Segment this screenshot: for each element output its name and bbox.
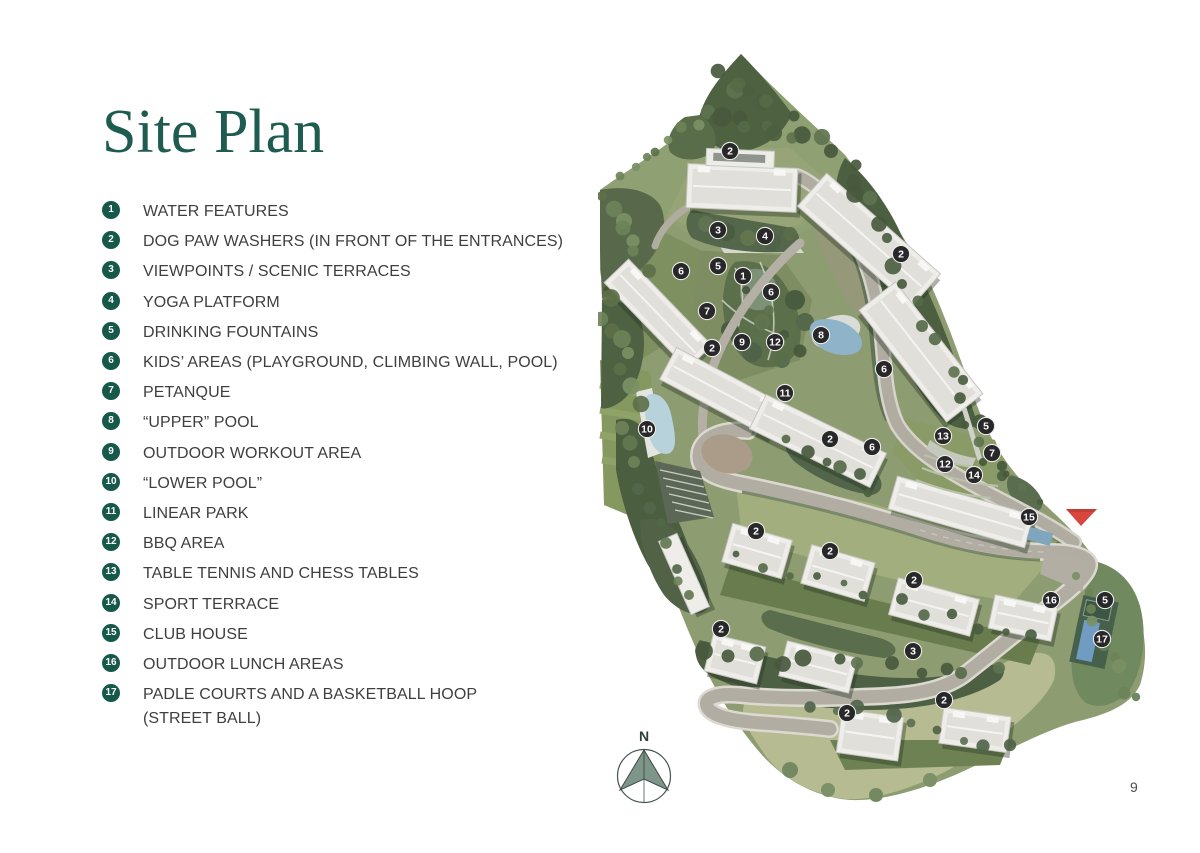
svg-text:12: 12 bbox=[939, 459, 951, 471]
svg-text:11: 11 bbox=[779, 388, 790, 400]
svg-text:N: N bbox=[639, 728, 649, 744]
svg-text:7: 7 bbox=[989, 448, 995, 460]
svg-text:6: 6 bbox=[678, 266, 684, 278]
svg-text:2: 2 bbox=[941, 695, 947, 707]
svg-text:10: 10 bbox=[641, 424, 653, 436]
svg-text:12: 12 bbox=[769, 337, 781, 349]
svg-text:5: 5 bbox=[715, 261, 721, 273]
svg-text:6: 6 bbox=[869, 442, 875, 454]
svg-text:2: 2 bbox=[727, 146, 733, 158]
svg-text:5: 5 bbox=[983, 421, 989, 433]
svg-text:2: 2 bbox=[898, 249, 904, 261]
svg-text:2: 2 bbox=[911, 575, 917, 587]
svg-text:4: 4 bbox=[762, 231, 768, 243]
svg-text:3: 3 bbox=[910, 646, 916, 658]
svg-text:2: 2 bbox=[827, 434, 833, 446]
svg-text:2: 2 bbox=[753, 526, 759, 538]
svg-text:2: 2 bbox=[844, 708, 850, 720]
svg-text:7: 7 bbox=[704, 306, 710, 318]
svg-text:17: 17 bbox=[1096, 634, 1108, 646]
svg-text:3: 3 bbox=[715, 225, 721, 237]
svg-text:6: 6 bbox=[768, 287, 774, 299]
svg-text:2: 2 bbox=[709, 343, 715, 355]
svg-text:6: 6 bbox=[881, 364, 887, 376]
svg-text:14: 14 bbox=[968, 470, 980, 482]
svg-text:8: 8 bbox=[818, 330, 824, 342]
svg-text:13: 13 bbox=[937, 431, 949, 443]
svg-text:1: 1 bbox=[740, 271, 746, 283]
svg-text:9: 9 bbox=[739, 337, 745, 349]
svg-text:2: 2 bbox=[718, 624, 724, 636]
svg-text:15: 15 bbox=[1023, 512, 1035, 524]
svg-text:16: 16 bbox=[1045, 595, 1057, 607]
svg-text:2: 2 bbox=[827, 546, 833, 558]
svg-text:5: 5 bbox=[1102, 595, 1108, 607]
